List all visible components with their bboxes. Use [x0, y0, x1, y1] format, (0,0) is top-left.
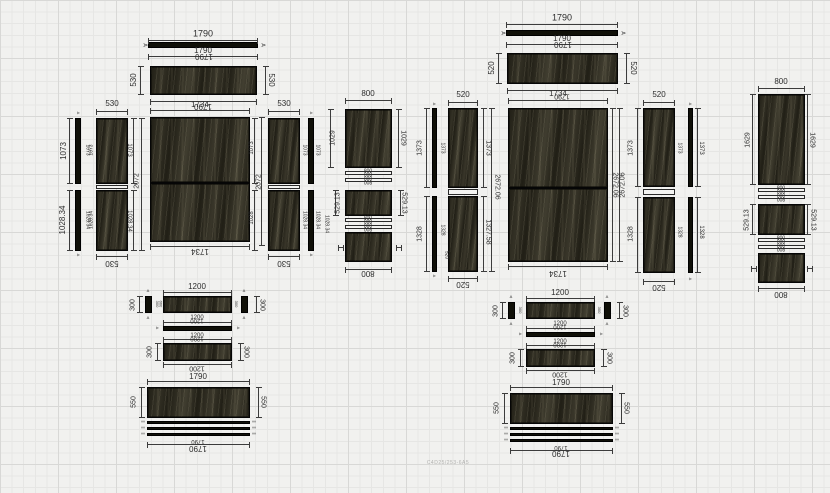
dimension-line [268, 256, 300, 257]
joint-strip [448, 189, 478, 195]
dim-label: 300 [159, 301, 163, 308]
dim-label: 529.13 [335, 192, 342, 213]
section-marker: AA [141, 427, 145, 430]
dim-label: 300 [130, 299, 137, 311]
edge-strip-panel[interactable] [308, 190, 314, 251]
section-marker: A [147, 316, 150, 320]
dim-label: 2672.06 [494, 174, 501, 199]
stone-panel[interactable] [508, 188, 608, 262]
dimension-line [69, 190, 70, 251]
section-marker: A [243, 289, 246, 293]
dim-label: 300 [493, 305, 500, 317]
section-marker: A [155, 327, 159, 330]
dim-label: 300 [597, 307, 601, 314]
dim-label: 800 [364, 171, 372, 176]
section-marker: AA [252, 433, 256, 436]
dimension-line [807, 204, 808, 235]
stone-panel[interactable] [345, 232, 392, 262]
dimension-line [96, 111, 128, 112]
stone-panel[interactable] [268, 118, 300, 184]
dimension-line [752, 204, 753, 235]
section-marker: AA [252, 421, 256, 424]
dimension-line [752, 94, 753, 185]
dim-label: 1629 [809, 132, 816, 148]
dim-label: 530 [105, 259, 118, 267]
edge-strip-panel[interactable] [241, 296, 248, 313]
dim-label: 1790 [552, 379, 570, 387]
dimension-line [338, 247, 344, 248]
dimension-line [520, 349, 521, 367]
stone-panel[interactable] [147, 387, 250, 418]
section-marker: A [510, 322, 513, 326]
stone-panel[interactable] [758, 253, 805, 283]
dim-label: 1328 [417, 226, 424, 242]
stone-panel[interactable] [448, 196, 478, 272]
dim-label: 520 [652, 91, 665, 99]
edge-strip-panel[interactable] [688, 197, 693, 273]
dim-label: 530 [277, 100, 290, 108]
dimension-line [626, 53, 627, 84]
stone-panel[interactable] [758, 204, 805, 235]
section-marker: A [309, 254, 313, 257]
dim-label: 1734 [549, 90, 567, 98]
dimension-line [643, 281, 675, 282]
dim-label: 300 [147, 346, 154, 358]
dim-label: 520 [444, 251, 449, 259]
dim-label: 1200 [551, 289, 569, 297]
dimension-line [133, 190, 134, 251]
dim-label: 529.13 [744, 209, 751, 230]
dim-label: 800 [364, 218, 372, 223]
dimension-line [504, 393, 505, 424]
dim-label: 530 [267, 73, 275, 86]
stone-panel[interactable] [150, 117, 250, 183]
edge-strip-panel[interactable] [75, 190, 81, 251]
dimension-line [147, 381, 250, 382]
dim-label: 1373 [628, 140, 635, 156]
dimension-line [163, 292, 232, 293]
dimension-line [157, 343, 158, 361]
section-marker: AA [504, 439, 508, 442]
section-marker: A [142, 43, 147, 46]
dimension-line [448, 102, 478, 103]
edge-strip-panel[interactable] [510, 427, 613, 430]
dim-label: 1373 [440, 142, 445, 153]
dim-label: 1790 [189, 444, 207, 452]
dim-label: 1328 [698, 225, 704, 238]
dim-label: 1328 [677, 226, 682, 237]
stone-panel[interactable] [96, 118, 128, 184]
edge-strip-panel[interactable] [604, 302, 611, 319]
section-marker: A [147, 289, 150, 293]
edge-strip-panel[interactable] [147, 433, 250, 436]
dim-label: 1200 [190, 335, 203, 341]
edge-strip-panel[interactable] [432, 196, 437, 272]
dim-label: 300 [622, 305, 629, 317]
dim-label: 1328 [440, 224, 445, 235]
dim-label: 300 [234, 301, 238, 308]
edge-strip-panel[interactable] [163, 326, 232, 331]
dim-label: 1790 [195, 52, 213, 60]
dimension-line [139, 296, 140, 313]
dim-label: 1200 [188, 283, 206, 291]
stone-panel[interactable] [643, 108, 675, 187]
section-marker: A [500, 31, 505, 34]
dim-label: 1734 [191, 247, 209, 255]
section-marker: A [599, 333, 603, 336]
dim-label: 1029 [400, 130, 407, 146]
dim-label: 800 [774, 290, 787, 298]
section-marker: AA [504, 433, 508, 436]
stone-panel[interactable] [508, 108, 608, 188]
dim-label: 1029 [330, 130, 337, 146]
edge-strip-panel[interactable] [510, 439, 613, 442]
dim-label: 1328 [628, 226, 635, 242]
section-marker: AA [615, 427, 619, 430]
section-marker: AA [252, 427, 256, 430]
dim-label: 1073 [249, 141, 255, 154]
section-marker: A [510, 295, 513, 299]
stone-panel[interactable] [96, 190, 128, 251]
dim-label: 1734 [191, 101, 209, 109]
dim-label: 1790 [193, 30, 213, 39]
dimension-line [758, 288, 805, 289]
dim-label: 800 [777, 196, 785, 201]
dim-label: 1200 [552, 371, 568, 378]
joint-strip [268, 185, 300, 189]
dim-label: 1028.34 [324, 215, 329, 233]
dim-label: 1073 [302, 144, 307, 155]
dim-label: 1028.34 [126, 210, 132, 232]
stone-panel[interactable] [510, 393, 613, 424]
dim-label: 550 [260, 396, 267, 408]
dimension-line [140, 66, 141, 95]
edge-strip-panel[interactable] [147, 427, 250, 430]
edge-strip-panel[interactable] [432, 108, 437, 188]
dim-label: 520 [652, 283, 665, 291]
dim-label: 1373 [677, 142, 682, 153]
dimension-line [502, 302, 503, 319]
dimension-line [240, 343, 241, 361]
section-marker: A [518, 333, 522, 336]
dimension-line [148, 40, 258, 41]
dimension-line [637, 108, 638, 187]
dim-label: 2672.06 [612, 172, 619, 197]
dim-label: 550 [131, 396, 138, 408]
stone-panel[interactable] [448, 108, 478, 188]
section-marker: A [688, 103, 692, 106]
stone-panel[interactable] [150, 66, 257, 95]
dimension-line [141, 118, 142, 251]
stone-panel[interactable] [163, 343, 232, 361]
dim-label: 1790 [552, 449, 570, 457]
section-marker: A [688, 278, 692, 281]
section-marker: AA [141, 433, 145, 436]
edge-strip-panel[interactable] [75, 118, 81, 184]
watermark-text: C4D25/253-6A5 [427, 460, 469, 466]
dim-label: 1790 [554, 40, 572, 48]
section-marker: A [76, 112, 80, 115]
dimension-line [506, 24, 618, 25]
dimension-line [643, 102, 675, 103]
section-marker: AA [615, 439, 619, 442]
dim-label: 1790 [552, 14, 572, 23]
dimension-line [498, 53, 499, 84]
stone-panel[interactable] [526, 349, 595, 367]
edge-strip-panel[interactable] [688, 108, 693, 187]
section-marker: AA [141, 421, 145, 424]
dim-label: 530 [130, 73, 138, 86]
dim-label: 1200 [553, 323, 566, 329]
dim-label: 530 [105, 100, 118, 108]
dim-label: 550 [494, 402, 501, 414]
dimension-line [141, 387, 142, 418]
dim-label: 1373 [417, 140, 424, 156]
section-marker: A [606, 295, 609, 299]
dimension-line [448, 278, 478, 279]
edge-strip-panel[interactable] [147, 421, 250, 424]
edge-strip-panel[interactable] [510, 433, 613, 436]
dim-label: 800 [361, 269, 374, 277]
dim-label: 1028.34 [59, 206, 67, 235]
dim-label: 1200 [553, 341, 566, 347]
dim-label: 520 [456, 91, 469, 99]
stone-panel[interactable] [526, 302, 595, 319]
stone-panel[interactable] [345, 190, 392, 216]
section-marker: A [243, 316, 246, 320]
stone-panel[interactable] [507, 53, 618, 84]
dim-label: 300 [606, 352, 613, 364]
dim-label: 800 [777, 246, 785, 251]
dimension-line [265, 66, 266, 95]
section-marker: AA [615, 433, 619, 436]
dimension-line [758, 88, 805, 89]
dimension-line [510, 387, 613, 388]
dimension-line [426, 108, 427, 188]
stone-panel[interactable] [268, 190, 300, 251]
stone-panel[interactable] [163, 296, 232, 313]
stone-panel[interactable] [345, 109, 392, 168]
dim-label: 1073 [126, 143, 132, 156]
dim-label: 1028.34 [302, 211, 307, 229]
dim-label: 800 [777, 188, 785, 193]
dimension-line [603, 349, 604, 367]
dim-label: 529.13 [401, 192, 408, 213]
edge-strip-panel[interactable] [508, 302, 515, 319]
dim-label: 300 [510, 352, 517, 364]
section-marker: A [309, 112, 313, 115]
dimension-line [426, 196, 427, 272]
edge-strip-panel[interactable] [526, 332, 595, 337]
dim-label: 1200 [189, 365, 205, 372]
dimension-line [345, 100, 392, 101]
dimension-line [69, 118, 70, 184]
dim-label: 1327.58 [485, 219, 492, 244]
dimension-line [256, 296, 257, 313]
dim-label: 520 [488, 61, 496, 74]
dim-label: 1790 [189, 373, 207, 381]
dim-label: 520 [629, 61, 637, 74]
section-marker: A [606, 322, 609, 326]
dimension-line [637, 197, 638, 273]
dimension-line [619, 302, 620, 319]
dimension-line [96, 256, 128, 257]
section-marker: A [432, 275, 436, 278]
dim-label: 550 [623, 402, 630, 414]
dim-label: 1734 [549, 269, 567, 277]
dimension-line [508, 100, 608, 101]
dim-label: 800 [364, 226, 372, 231]
dim-label: 1073 [315, 144, 320, 155]
stone-panel[interactable] [643, 197, 675, 273]
dim-label: 1200 [190, 317, 203, 323]
dim-label: 2672.06 [620, 172, 627, 197]
dimension-line [491, 108, 492, 272]
dimension-line [508, 266, 608, 267]
dimension-line [268, 111, 300, 112]
section-marker: A [236, 327, 240, 330]
dimension-line [396, 247, 402, 248]
dim-label: 1028.34 [315, 211, 320, 229]
dim-label: 1073 [60, 142, 68, 160]
section-marker: A [76, 254, 80, 257]
dim-label: 1028.34 [90, 211, 95, 229]
dim-label: 800 [361, 90, 374, 98]
edge-strip-panel[interactable] [145, 296, 152, 313]
dim-label: 530 [277, 259, 290, 267]
dim-label: 800 [777, 238, 785, 243]
dim-label: 1629 [745, 132, 752, 148]
dimension-line [751, 268, 757, 269]
section-marker: A [260, 43, 265, 46]
dim-label: 1373 [485, 140, 492, 156]
dim-label: 800 [774, 78, 787, 86]
dim-label: 520 [456, 280, 469, 288]
section-marker: A [620, 31, 625, 34]
drawing-canvas[interactable]: C4D25/253-6A5 1790179017905305301790AA17… [0, 0, 830, 493]
dim-label: 1373 [698, 141, 704, 154]
dim-label: 2072 [134, 173, 141, 189]
dim-label: 300 [259, 299, 266, 311]
dim-label: 300 [243, 346, 250, 358]
dimension-line [807, 268, 813, 269]
edge-strip-panel[interactable] [308, 118, 314, 184]
dim-label: 2072 [256, 174, 263, 190]
joint-strip [643, 189, 675, 195]
joint-strip [96, 185, 128, 189]
dim-label: 1028 [249, 211, 255, 224]
section-marker: A [432, 103, 436, 106]
dim-label: 800 [364, 179, 372, 184]
dimension-line [526, 298, 595, 299]
dim-label: 529.13 [810, 209, 817, 230]
dim-label: 300 [518, 307, 522, 314]
section-marker: AA [504, 427, 508, 430]
dim-label: 1073 [90, 144, 95, 155]
stone-panel[interactable] [758, 94, 805, 185]
stone-panel[interactable] [150, 183, 250, 242]
